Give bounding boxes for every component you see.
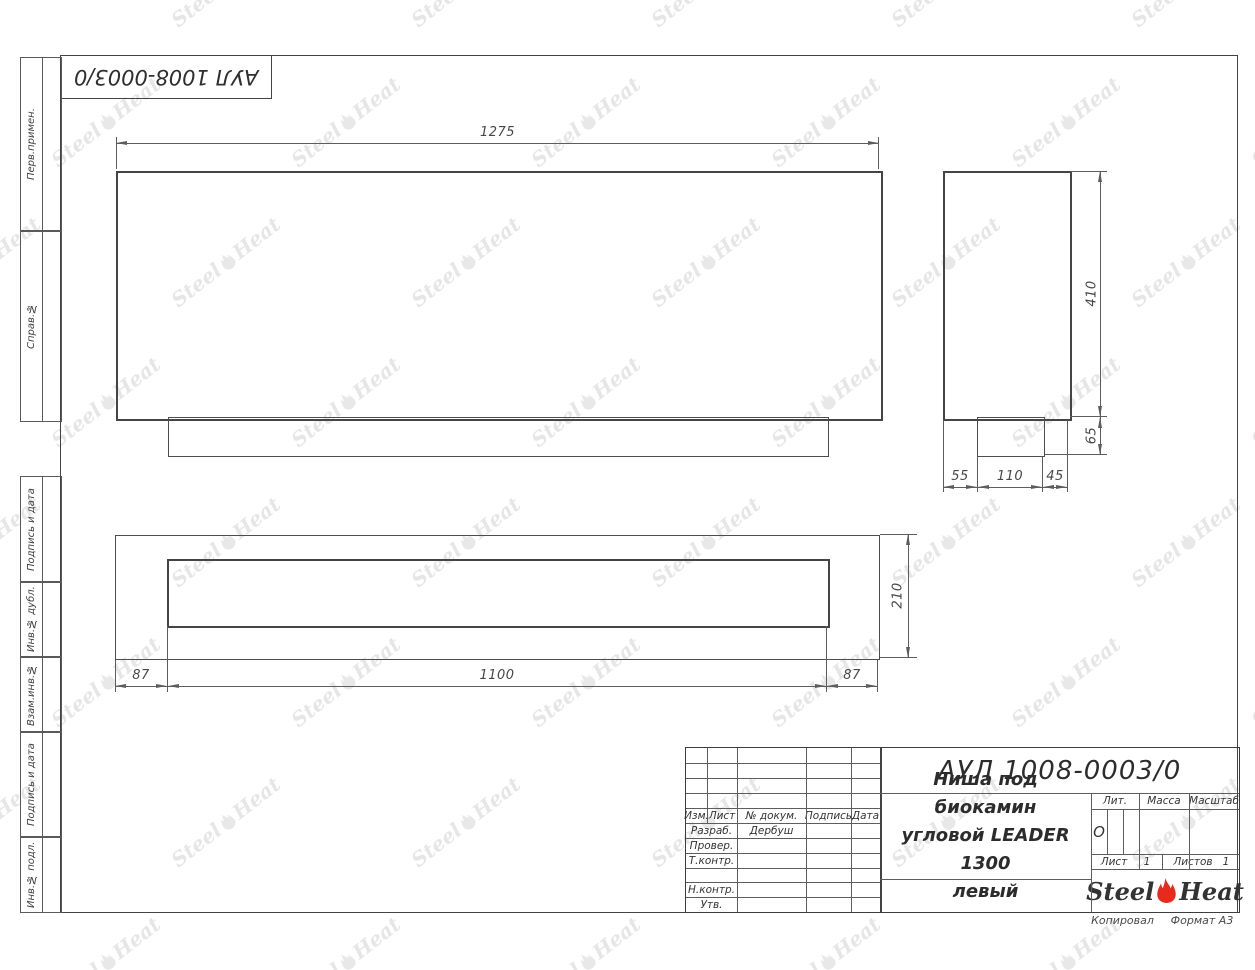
row-utv: Утв. — [686, 897, 737, 912]
lit-value: О — [1091, 809, 1107, 854]
margin-box-perv-primen: Перв.примен. — [20, 57, 62, 232]
margin-label: Взам.инв.№ — [21, 657, 42, 732]
watermark: SteelHeat — [887, 0, 1005, 32]
col-ndoc: № докум. — [737, 808, 806, 823]
dim-side-foot-height: 65 — [1085, 415, 1100, 457]
bottom-view-opening — [167, 559, 830, 628]
watermark: SteelHeat — [1127, 0, 1245, 32]
dim-side-b3: 45 — [1035, 469, 1075, 484]
watermark: SteelHeat — [407, 0, 525, 32]
lit-label: Лит. — [1091, 793, 1139, 809]
margin-label: Инв.№ дубл. — [21, 582, 42, 657]
dim-bottom-left: 87 — [121, 668, 161, 683]
margin-box-vzam-inv: Взам.инв.№ — [20, 656, 62, 733]
drawing-sheet: SteelHeatSteelHeatSteelHeatSteelHeatStee… — [0, 0, 1255, 970]
margin-label: Справ.№ — [21, 231, 42, 421]
row-prover: Провер. — [686, 838, 737, 853]
title-block: Изм. Лист № докум. Подпись Дата Разраб. … — [685, 747, 1240, 913]
col-data: Дата — [851, 808, 880, 823]
col-list: Лист — [707, 808, 737, 823]
margin-box-sprav-no: Справ.№ — [20, 230, 62, 422]
company-logo: Steel Heat — [1091, 869, 1239, 912]
row-nkontr: Н.контр. — [686, 882, 737, 897]
row-razrab: Разраб. — [686, 823, 737, 838]
logo-heat-text: Heat — [1179, 881, 1244, 903]
flame-icon — [95, 949, 118, 970]
watermark: SteelHeat — [47, 912, 165, 970]
part-name-line1: Ниша под биокамин — [880, 766, 1091, 822]
dim-bottom-right: 87 — [832, 668, 872, 683]
massa-label: Масса — [1139, 793, 1189, 809]
logo-steel-text: Steel — [1086, 881, 1154, 903]
margin-box-podpis-data-1: Подпись и дата — [20, 476, 62, 583]
margin-box-inv-podl: Инв.№ подл. — [20, 836, 62, 913]
corner-doc-number: АУЛ 1008-0003/0 — [74, 65, 259, 89]
dim-side-b1: 55 — [940, 469, 980, 484]
masshtab-label: Масштаб — [1189, 793, 1239, 809]
part-name: Ниша под биокамин угловой LEADER 1300 ле… — [880, 793, 1091, 879]
corner-stamp: АУЛ 1008-0003/0 — [60, 55, 272, 99]
row-tkontr: Т.контр. — [686, 853, 737, 868]
margin-label: Подпись и дата — [21, 477, 42, 582]
watermark: SteelHeat — [767, 912, 885, 970]
flame-icon — [335, 949, 358, 970]
dim-side-b2: 110 — [985, 469, 1035, 484]
front-view-base — [168, 417, 829, 457]
list-label: Лист — [1094, 854, 1134, 869]
watermark: SteelHeat — [167, 0, 285, 32]
margin-label: Инв.№ подл. — [21, 837, 42, 912]
part-name-line2: угловой LEADER 1300 — [880, 822, 1091, 878]
watermark: SteelHeat — [1247, 912, 1255, 970]
watermark: SteelHeat — [1247, 72, 1255, 172]
margin-label: Перв.примен. — [21, 58, 42, 231]
dim-side-height: 410 — [1085, 273, 1100, 315]
row-razrab-value: Дербуш — [737, 823, 806, 838]
watermark: SteelHeat — [1247, 352, 1255, 452]
margin-label: Подпись и дата — [21, 732, 42, 837]
watermark: SteelHeat — [0, 0, 45, 32]
side-view-base — [977, 417, 1045, 457]
dim-bottom-height: 210 — [891, 575, 906, 617]
listov-value: 1 — [1216, 854, 1236, 869]
watermark: SteelHeat — [647, 0, 765, 32]
front-view-outline — [116, 171, 883, 421]
dim-front-width: 1275 — [116, 125, 879, 140]
margin-box-podpis-data-2: Подпись и дата — [20, 731, 62, 838]
flame-icon — [815, 949, 838, 970]
dim-bottom-center: 1100 — [457, 668, 537, 683]
watermark: SteelHeat — [287, 912, 405, 970]
part-name-line3: левый — [953, 878, 1019, 906]
flame-icon — [575, 949, 598, 970]
flame-icon — [1055, 949, 1078, 970]
flame-icon — [1156, 878, 1177, 903]
listov-label: Листов — [1168, 854, 1218, 869]
watermark: SteelHeat — [527, 912, 645, 970]
side-view-outline — [943, 171, 1072, 421]
col-izm: Изм. — [686, 808, 707, 823]
margin-box-inv-dubl: Инв.№ дубл. — [20, 581, 62, 658]
format-note: Формат А3 — [1163, 914, 1241, 927]
watermark: SteelHeat — [1247, 632, 1255, 732]
kopiroval-note: Копировал — [1075, 914, 1170, 927]
col-podpis: Подпись — [806, 808, 851, 823]
